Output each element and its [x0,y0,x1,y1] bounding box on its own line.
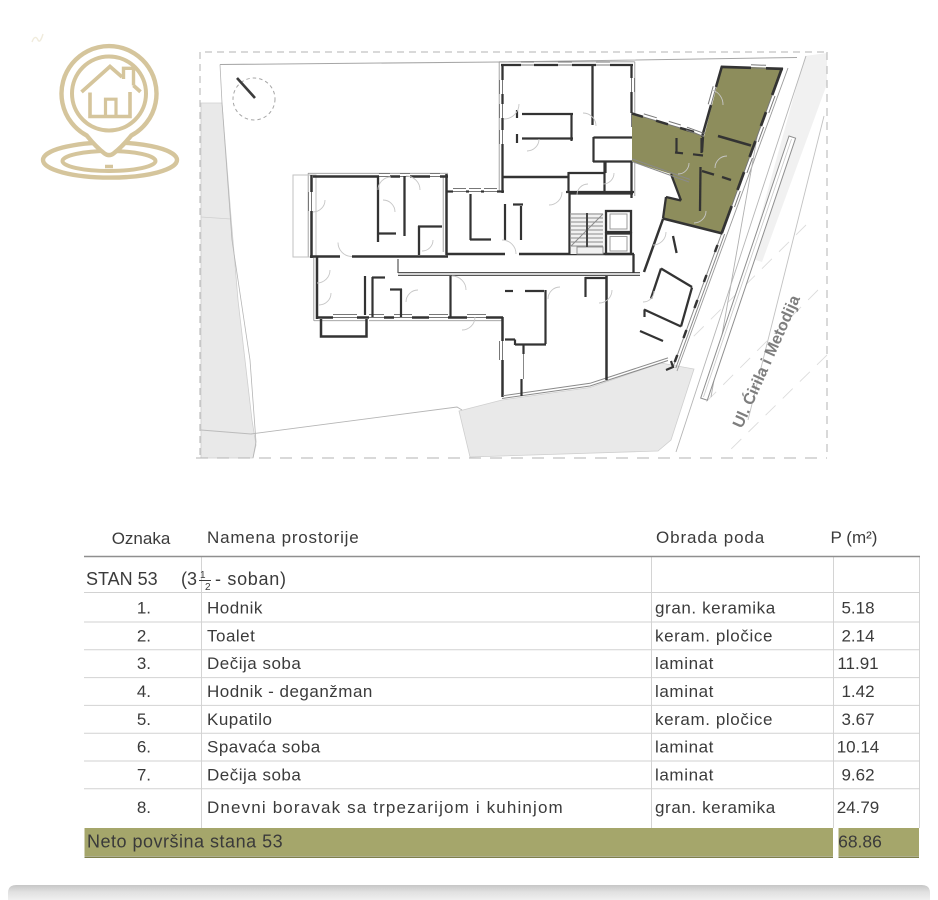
svg-text:Kupatilo: Kupatilo [207,710,272,729]
svg-text:10.14: 10.14 [837,738,880,757]
svg-text:laminat: laminat [655,654,714,673]
svg-text:6.: 6. [137,738,151,757]
svg-text:5.18: 5.18 [841,599,874,618]
svg-text:laminat: laminat [655,738,714,757]
svg-text:Toalet: Toalet [207,626,255,645]
svg-text:- soban): - soban) [215,569,287,589]
svg-text:8.: 8. [137,798,151,817]
svg-text:(3: (3 [181,569,197,589]
svg-text:Oznaka: Oznaka [112,529,171,548]
svg-text:7.: 7. [137,765,151,784]
svg-text:2.14: 2.14 [841,626,874,645]
svg-text:laminat: laminat [655,765,714,784]
svg-text:3.: 3. [137,654,151,673]
svg-text:gran. keramika: gran. keramika [655,599,776,618]
svg-text:keram. pločice: keram. pločice [655,626,773,645]
svg-text:Neto površina stana 53: Neto površina stana 53 [87,832,283,852]
svg-text:2.: 2. [137,626,151,645]
svg-text:Dečija soba: Dečija soba [207,654,301,673]
svg-text:Hodnik: Hodnik [207,599,263,618]
svg-text:24.79: 24.79 [837,798,880,817]
svg-text:9.62: 9.62 [841,765,874,784]
svg-text:Dnevni boravak sa trpezarijom: Dnevni boravak sa trpezarijom i kuhinjom [207,798,564,817]
svg-text:1.: 1. [137,599,151,618]
svg-text:Hodnik - deganžman: Hodnik - deganžman [207,682,373,701]
svg-text:Namena prostorije: Namena prostorije [207,528,360,547]
svg-text:1.42: 1.42 [841,682,874,701]
svg-text:1: 1 [200,570,206,581]
svg-text:11.91: 11.91 [837,654,878,673]
svg-text:Obrada poda: Obrada poda [656,528,765,547]
svg-text:3.67: 3.67 [841,710,874,729]
svg-text:keram. pločice: keram. pločice [655,710,773,729]
svg-text:Ul. Ćirila i Metodija: Ul. Ćirila i Metodija [728,292,804,431]
svg-text:laminat: laminat [655,682,714,701]
svg-text:68.86: 68.86 [838,832,882,852]
svg-text:4.: 4. [137,682,151,701]
svg-text:2: 2 [205,582,211,593]
svg-text:gran. keramika: gran. keramika [655,798,776,817]
svg-text:Dečija soba: Dečija soba [207,765,301,784]
svg-text:5.: 5. [137,710,151,729]
svg-text:Spavaća soba: Spavaća soba [207,738,321,757]
svg-text:STAN 53: STAN 53 [86,569,158,589]
svg-text:P (m²): P (m²) [831,528,878,547]
